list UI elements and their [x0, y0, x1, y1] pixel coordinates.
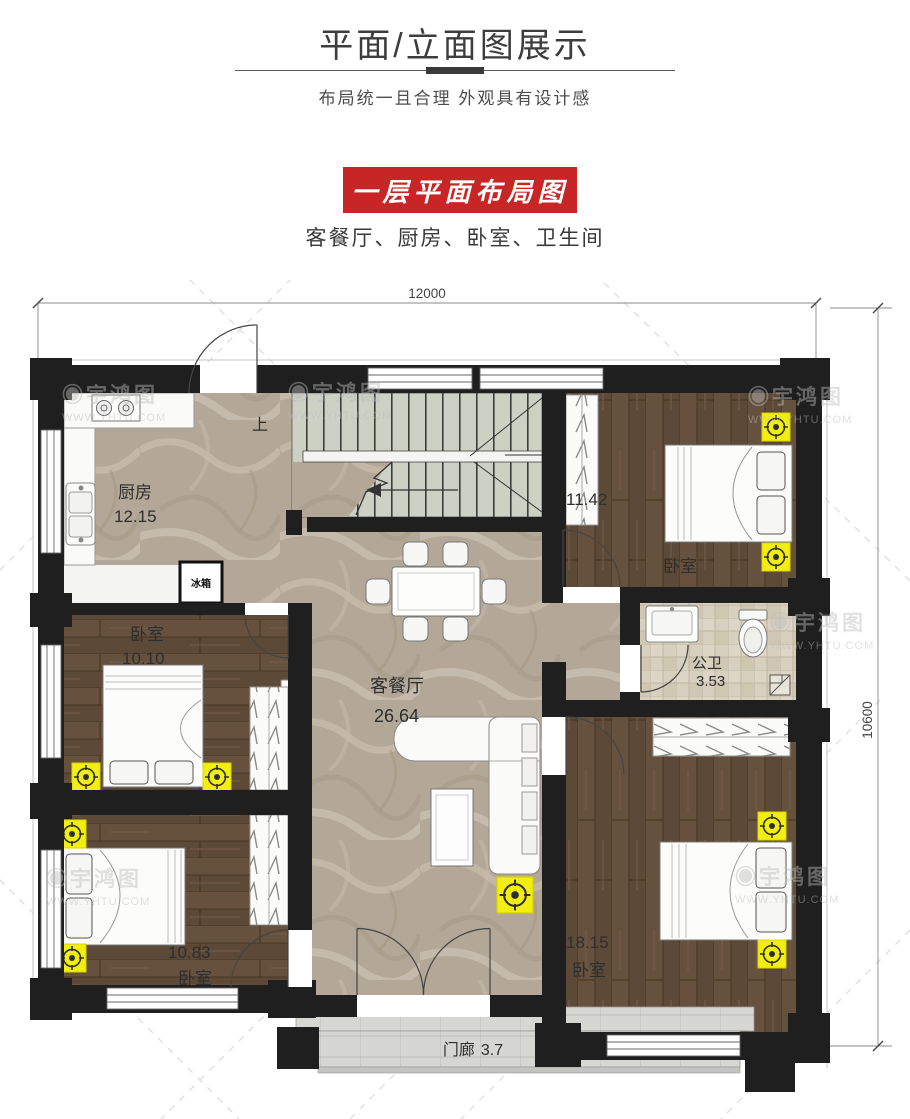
- toilet: [739, 610, 767, 657]
- floor-plan-figure: ◉宇鸿图 WWW.YHTU.COM 12000 10600: [0, 280, 910, 1119]
- window-left-bed-ml: [41, 645, 61, 758]
- label-bed-ml-name: 卧室: [130, 625, 164, 644]
- label-bed-bl-area: 10.83: [168, 943, 211, 962]
- page-title: 平面/立面图展示: [0, 18, 910, 67]
- dimension-width: 12000: [408, 286, 446, 301]
- label-bath-name: 公卫: [692, 655, 722, 672]
- bed-ml: [103, 665, 203, 787]
- label-kitchen-name: 厨房: [118, 483, 152, 502]
- window-top-2: [480, 368, 603, 389]
- label-living-name: 客餐厅: [370, 676, 424, 696]
- label-living-area: 26.64: [374, 706, 419, 726]
- label-bed-br-name: 卧室: [572, 961, 606, 980]
- label-stairs-up: 上: [252, 416, 268, 434]
- fridge: 冰箱: [180, 562, 222, 603]
- floor-kitchen-white: [64, 565, 180, 603]
- section-banner: 一层平面布局图: [343, 167, 577, 213]
- label-bed-bl-name: 卧室: [178, 969, 212, 988]
- label-bed-tr-area: 11.42: [566, 490, 607, 509]
- floor-drain: [770, 675, 790, 695]
- dining-table: [392, 567, 480, 616]
- window-bottom-right: [607, 1035, 740, 1056]
- label-bath-area: 3.53: [696, 673, 725, 690]
- title-divider-accent: [426, 67, 484, 74]
- label-porch: 门廊3.7: [443, 1041, 503, 1059]
- porch-column-right: [745, 1048, 795, 1092]
- bed-br: [660, 842, 792, 940]
- label-kitchen-area: 12.15: [114, 507, 157, 526]
- porch-column-left: [277, 1027, 319, 1069]
- bed-tr: [665, 445, 792, 542]
- dimension-height: 10600: [860, 701, 875, 739]
- label-bed-br-area: 18.15: [566, 933, 609, 952]
- coffee-table: [431, 789, 473, 866]
- label-bed-tr-name: 卧室: [663, 557, 697, 576]
- window-bottom-left: [107, 988, 238, 1009]
- window-left-kitchen: [41, 430, 61, 553]
- kitchen-sink: [66, 483, 95, 545]
- page-subtitle: 布局统一且合理 外观具有设计感: [0, 84, 910, 109]
- rooms-summary: 客餐厅、厨房、卧室、卫生间: [0, 222, 910, 252]
- label-bed-ml-area: 10.10: [122, 649, 165, 668]
- fridge-label: 冰箱: [191, 577, 211, 590]
